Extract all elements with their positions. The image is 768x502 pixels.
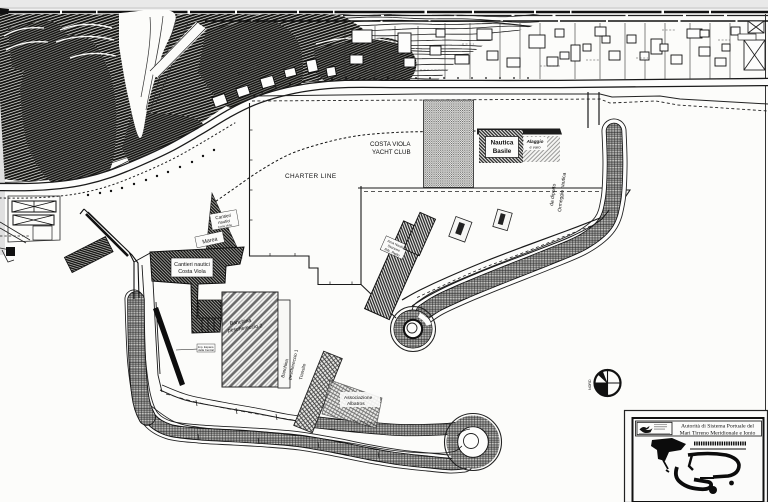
svg-text:Nautica: Nautica — [491, 140, 514, 147]
svg-text:Basile: Basile — [493, 148, 512, 155]
svg-text:COSTA VIOLA: COSTA VIOLA — [370, 141, 411, 148]
svg-text:e varo: e varo — [529, 145, 541, 150]
svg-text:YACHT CLUB: YACHT CLUB — [372, 149, 411, 156]
svg-text:della Central: della Central — [198, 348, 214, 352]
svg-text:Autorità di Sistema Portuale d: Autorità di Sistema Portuale del — [681, 424, 754, 430]
svg-text:Associazione: Associazione — [344, 395, 373, 401]
svg-text:Cantieri nautici: Cantieri nautici — [174, 262, 210, 268]
svg-text:CHARTER LINE: CHARTER LINE — [285, 173, 337, 180]
svg-text:Alaggio: Alaggio — [526, 139, 544, 144]
svg-text:Mari Tirreno Meridionale e Ion: Mari Tirreno Meridionale e Ionio — [680, 431, 756, 437]
svg-text:NORD: NORD — [588, 379, 592, 390]
svg-text:Albatros: Albatros — [347, 401, 365, 407]
svg-text:Costa Viola: Costa Viola — [178, 269, 205, 275]
